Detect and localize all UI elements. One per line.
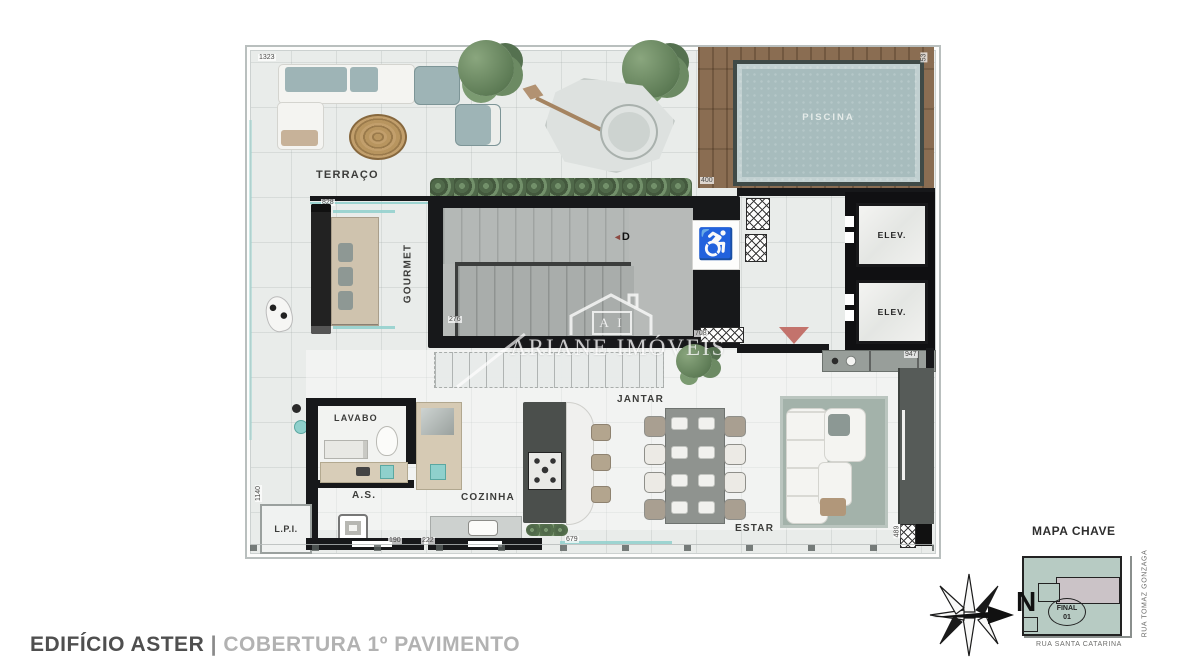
living-throw [820,498,846,516]
gourmet-glass-bottom [333,326,395,329]
dim-as-left: 190 [388,537,402,544]
lavabo-label: LAVABO [334,413,378,423]
dim-top-left: 1323 [258,54,276,61]
shaft-hatch [746,198,770,230]
elevator-door-slot [845,216,854,227]
pool: PISCINA [733,60,924,186]
round-rug [349,114,407,160]
keymap-title: MAPA CHAVE [1032,524,1115,538]
elevator-label: ELEV. [878,230,907,240]
gourmet-label: GOURMET [403,229,414,319]
island-stool-3 [591,486,611,503]
stairs-down-arrow-icon: ◄ [613,232,622,242]
entry-marker-icon [779,327,809,344]
title-floor: COBERTURA 1º PAVIMENTO [223,633,520,656]
lavabo-top-wall [306,398,416,406]
elevator-cab-2: ELEV. [856,280,928,344]
dim-top-right: 53 [920,53,927,63]
grill-counter [311,204,331,334]
toilet [376,426,398,456]
place-setting-4 [698,446,715,459]
dim-cozinha-bottom: 679 [565,536,579,543]
island-plant [526,524,568,536]
dim-left-side: 1140 [255,485,262,502]
watermark: A I ARIANE IMÓVEIS [430,285,730,375]
page-canvas: { "title": { "building": "EDIFÍCIO ASTER… [0,0,1200,672]
gourmet-chair-3 [338,291,353,310]
dining-chair-8 [724,499,746,520]
place-setting-2 [698,417,715,430]
elevator-door-slot-4 [845,310,854,321]
as-counter-item-teal [380,465,394,479]
terrace-tree [458,40,514,96]
living-side-table [828,414,850,436]
stairs-direction-marker: ◄D [613,231,630,243]
tv-screen [902,410,905,480]
elevator-cab: ELEV. [856,203,928,267]
terrace-sofa-cushion-2 [350,67,378,92]
lavabo-sink [324,440,368,459]
watermark-badge: A I [592,311,632,335]
cozinha-label: COZINHA [461,492,515,503]
dining-chair-4 [644,499,666,520]
elevator-door-slot-3 [845,294,854,305]
dining-chair-3 [644,472,666,493]
keymap-notch [1023,617,1038,632]
island-stool-2 [591,454,611,471]
corner-cabinet [916,524,932,546]
place-setting-7 [671,501,688,514]
terrace-chaise-foot [281,130,318,146]
terrace-label: TERRAÇO [316,169,379,181]
closet-mirror [421,408,454,435]
cooktop [528,452,562,490]
gourmet-chair-2 [338,267,353,286]
jantar-label: JANTAR [617,394,664,405]
island-stool [591,424,611,441]
elevator-label-2: ELEV. [878,307,907,317]
as-label: A.S. [352,490,376,501]
lpi-label: L.P.I. [274,524,297,534]
keymap-unit-line2: 01 [1049,613,1085,622]
hall-bottom-wall [737,344,829,353]
dim-bar-counter: 947 [904,351,918,358]
wheelchair-icon: ♿ [697,230,734,260]
compass-north-label: N [1016,586,1036,618]
kitchen-sink [468,520,498,536]
dim-pool-deck: 400 [700,177,714,184]
dim-as-right: 222 [421,537,435,544]
keymap-street-line-right [1130,556,1132,636]
terrace-pouf-2 [455,104,501,146]
accessible-box: ♿ [692,220,740,270]
swing-chair [600,104,658,160]
gourmet-chair [338,243,353,262]
title-building: EDIFÍCIO ASTER [30,633,204,656]
place-setting-5 [671,474,688,487]
stair-flight-upper [443,208,629,264]
dining-chair-6 [724,444,746,465]
place-setting-6 [698,474,715,487]
keymap-street-line-bottom [1024,636,1132,638]
terrace-pouf [414,66,460,105]
place-setting-8 [698,501,715,514]
title-separator: | [211,633,217,656]
dining-chair-7 [724,472,746,493]
place-setting-3 [671,446,688,459]
compass-rose-icon [924,570,1014,660]
estar-label: ESTAR [735,523,774,534]
dining-chair-5 [724,416,746,437]
elevator-door-slot-2 [845,232,854,243]
stairs-down-letter: D [622,231,630,243]
left-parapet-glass [249,120,252,440]
page-title: EDIFÍCIO ASTER | COBERTURA 1º PAVIMENTO [30,633,520,657]
dining-chair [644,416,666,437]
dining-chair-2 [644,444,666,465]
shaft-hatch-2 [745,234,767,262]
terrace-sofa-cushion [285,67,347,92]
keymap-street-right-label: RUA TOMAZ GONZAGA [1142,547,1149,641]
pool-label: PISCINA [737,112,920,123]
closet-item-teal [430,464,446,480]
as-counter-item [356,467,370,476]
dim-estar-right: 489 [893,525,900,539]
keymap-unit-line1: FINAL [1049,604,1085,613]
parapet-ticks [250,544,934,551]
place-setting [671,417,688,430]
island-counter-curve [566,402,594,525]
decor-vase [292,404,301,413]
lavabo-right-wall [406,398,416,464]
watermark-name: ARIANE IMÓVEIS [510,335,730,361]
keymap-street-bottom-label: RUA SANTA CATARINA [1035,641,1123,648]
gourmet-glass-top [333,210,395,213]
keymap-unit-badge: FINAL 01 [1048,598,1086,626]
